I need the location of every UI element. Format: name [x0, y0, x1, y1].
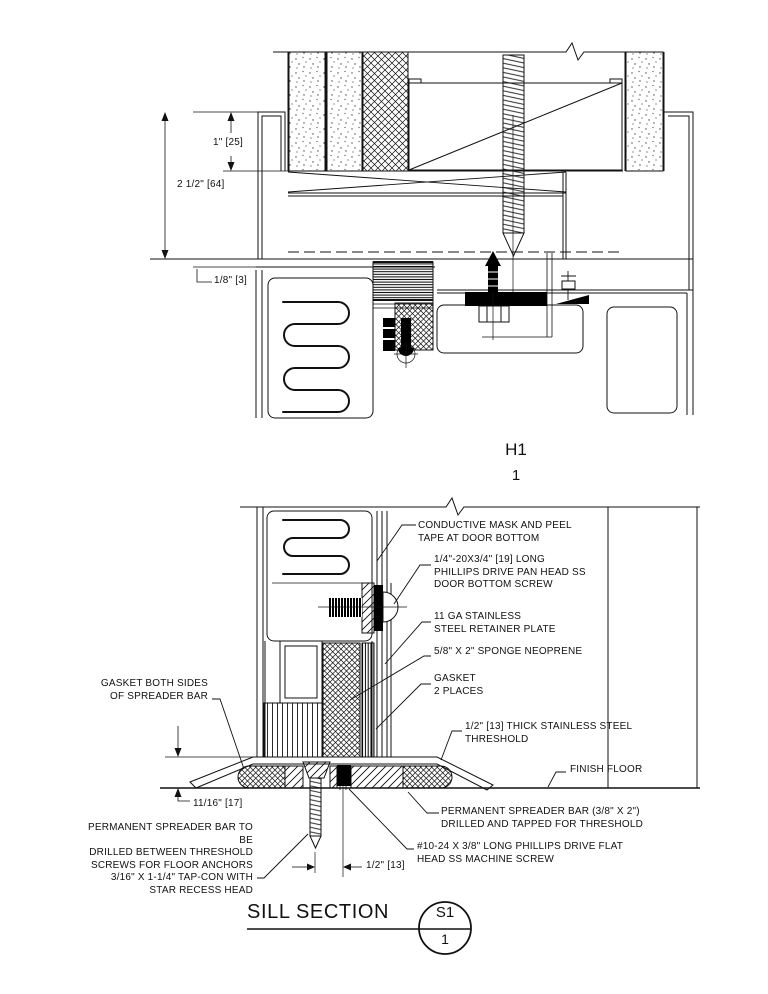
- dim-sill-height: 11/16" [17]: [193, 798, 243, 809]
- spreader-bar-row: [238, 762, 452, 790]
- sill-frame-left: [257, 507, 263, 757]
- note-tap-con: PERMANENT SPREADER BAR TO BE DRILLED BET…: [75, 822, 253, 897]
- note-sponge-neoprene: 5/8" X 2" SPONGE NEOPRENE: [434, 646, 582, 659]
- machine-screw-section: [337, 765, 351, 786]
- dim-head-bottom: 1/8" [3]: [214, 275, 247, 286]
- dim-sill-offset: 1/2" [13]: [366, 860, 405, 871]
- head-detail-label: H1: [498, 440, 534, 460]
- note-finish-floor: FINISH FLOOR: [570, 764, 642, 777]
- frame-jamb-box: [607, 307, 677, 413]
- drawing-sheet: 1" [25] 2 1/2" [64] 1/8" [3] H1 1 CONDUC…: [0, 0, 768, 994]
- frame-stop: [437, 305, 583, 353]
- retainer-plate-strip: [362, 643, 374, 758]
- sill-section-title: SILL SECTION: [247, 901, 389, 924]
- note-gasket-both-sides: GASKET BOTH SIDES OF SPREADER BAR: [90, 678, 208, 703]
- head-grout-strip-1: [289, 52, 325, 171]
- door-bottom-assembly: [264, 641, 374, 758]
- bubble-sheet-number: 1: [425, 931, 465, 947]
- sponge-neoprene-block: [323, 643, 360, 758]
- gasket-right: [403, 766, 452, 788]
- dim-head-mid: 2 1/2" [64]: [177, 179, 224, 190]
- tap-con-head: [303, 762, 330, 778]
- note-spreader-bar: PERMANENT SPREADER BAR (3/8" X 2") DRILL…: [441, 806, 643, 831]
- head-grout-strip-right: [626, 52, 663, 171]
- note-gasket-2-places: GASKET 2 PLACES: [434, 673, 483, 698]
- gasket-left: [238, 766, 285, 788]
- head-section-drawing: [150, 43, 693, 418]
- dim-head-top: 1" [25]: [213, 137, 243, 148]
- note-threshold: 1/2" [13] THICK STAINLESS STEEL THRESHOL…: [465, 721, 632, 746]
- head-insulation-crosshatch: [363, 52, 408, 171]
- note-machine-screw: #10-24 X 3/8" LONG PHILLIPS DRIVE FLAT H…: [417, 841, 623, 866]
- frame-clip-screw: [556, 271, 589, 304]
- note-retainer-plate: 11 GA STAINLESS STEEL RETAINER PLATE: [434, 611, 556, 636]
- head-grout-strip-2: [327, 52, 362, 171]
- bubble-detail-id: S1: [425, 904, 465, 921]
- head-detail-number: 1: [498, 467, 534, 484]
- frame-head-left-flange: [258, 112, 285, 259]
- note-door-bottom-screw: 1/4"-20X3/4" [19] LONG PHILLIPS DRIVE PA…: [434, 554, 586, 592]
- note-conductive-mask: CONDUCTIVE MASK AND PEEL TAPE AT DOOR BO…: [418, 520, 572, 545]
- door-leaf-head: [256, 270, 373, 418]
